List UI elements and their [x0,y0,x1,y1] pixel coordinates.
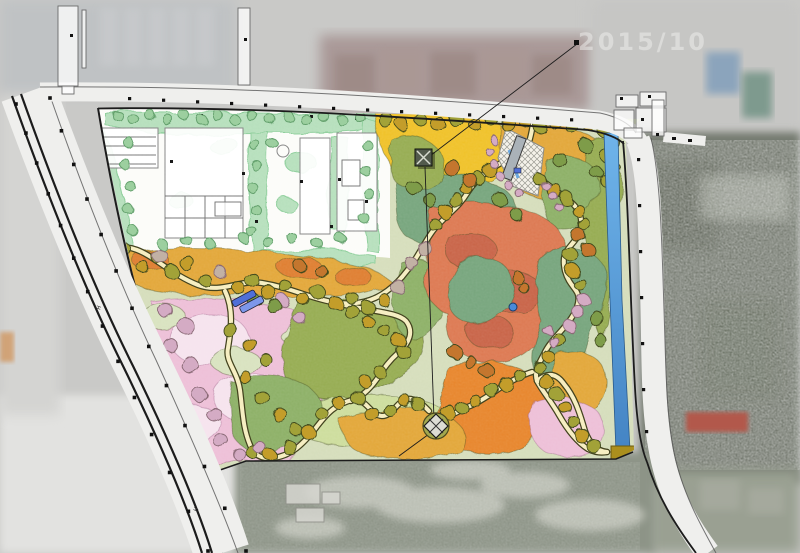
tree-canopy [496,172,504,180]
street-tree-dot [468,113,471,116]
tree-canopy [564,320,576,332]
pavilion-marker-north [415,149,435,169]
street-tree-tick [24,131,28,135]
tree-canopy [398,394,410,406]
tree-canopy [568,416,580,428]
tree-canopy [490,160,498,168]
tree-canopy [594,334,606,346]
aerial-orange-patch [0,332,14,362]
tree-canopy [360,165,370,175]
tree-canopy [359,213,369,223]
tree-canopy [145,110,155,120]
tree-canopy [417,241,431,255]
aerial-field-speckle [240,462,640,550]
tree-canopy [181,235,191,245]
tree-canopy [329,297,343,311]
tree-canopy [560,402,572,414]
tree-canopy [378,324,390,336]
street-tree-dot [298,105,301,108]
tree-canopy [120,159,130,169]
tree-canopy [335,233,345,243]
tree-canopy [337,115,347,125]
tree-canopy [407,181,421,195]
street-tree-dot [536,117,539,120]
tree-canopy [365,407,379,421]
tree-canopy [123,137,133,147]
tree-canopy [316,266,328,278]
street-tree-dot [366,108,369,111]
tree-canopy [572,306,584,318]
tree-canopy [208,408,222,422]
tree-canopy [378,294,390,306]
street-tree-tick [101,324,105,328]
date-watermark: 2015/10 [578,28,708,56]
street-tree-tick [133,396,137,400]
tree-canopy [179,110,189,120]
tree-canopy [575,429,589,443]
small-pond [509,303,517,311]
tree-canopy [213,111,223,121]
street-tree-tick [60,129,64,133]
tree-canopy [578,294,590,306]
tree-canopy [515,189,523,197]
aerial-red-roof [686,412,748,432]
tree-canopy [464,356,476,368]
tree-canopy [572,204,584,216]
tree-canopy [234,449,246,461]
tree-canopy [439,205,453,219]
tree-canopy [294,312,306,324]
tree-canopy [448,345,462,359]
tree-canopy [254,442,266,454]
tree-canopy [129,115,139,125]
tree-canopy [364,189,374,199]
tree-canopy [136,260,148,272]
street-tree-tick [187,509,191,513]
street-tree-dot [640,296,643,299]
tree-canopy [248,183,258,193]
street-tree-tick [244,549,248,553]
tree-canopy [499,377,513,391]
tree-canopy [505,182,513,190]
tree-canopy [542,182,550,190]
street-tree-dot [332,107,335,110]
site-plan-screenshot: 2015/10 [0,0,800,553]
tree-canopy [406,258,418,270]
tree-canopy [240,372,252,384]
tree-canopy [311,237,321,247]
street-tree-dot [641,342,644,345]
tree-canopy [345,305,359,319]
street-tree-dot [570,118,573,121]
street-tree-tick [46,192,50,196]
tree-canopy [243,338,257,352]
tree-canopy [247,111,257,121]
tree-canopy [127,225,137,235]
street-tree-tick [130,306,134,310]
tree-canopy [571,228,585,242]
tree-canopy [239,233,249,243]
street-tree-dot [638,204,641,207]
tree-canopy [563,247,577,261]
tree-canopy [549,387,563,401]
tree-canopy [589,311,603,325]
tree-canopy [287,233,297,243]
tree-canopy [261,285,275,299]
tree-canopy [162,114,172,124]
tree-canopy [579,139,593,153]
tree-canopy [534,362,546,374]
tree-canopy [391,333,405,347]
street-tree-dot [264,104,267,107]
street-tree-tick [147,345,151,349]
tree-canopy [245,273,259,287]
tree-canopy [346,292,358,304]
tree-canopy [113,111,123,121]
tree-canopy [301,115,311,125]
tree-canopy [232,281,244,293]
street-tree-dot [502,115,505,118]
tree-canopy [199,274,211,286]
tree-canopy [290,424,302,436]
tree-canopy [332,396,344,408]
tree-canopy [181,257,195,271]
street-tree-dot [434,112,437,115]
tree-canopy [267,299,281,313]
tree-canopy [296,292,308,304]
tree-canopy [311,285,325,299]
tree-canopy [396,118,408,130]
tree-canopy [157,239,167,249]
tree-canopy [490,136,498,144]
aerial-blue-roof [706,52,740,94]
pavilion-marker-south [423,413,449,439]
street-tree-dot [400,110,403,113]
tree-canopy [449,193,463,207]
tree-canopy [485,383,499,397]
tree-canopy [249,139,259,149]
tree-canopy [549,192,557,200]
tree-canopy [251,205,261,215]
tree-canopy [316,408,328,420]
street-tree-tick [165,384,169,388]
tree-canopy [565,263,579,277]
tree-canopy [553,153,567,167]
tree-canopy [493,193,507,207]
tree-canopy [463,173,477,187]
street-tree-dot [196,100,199,103]
street-tree-dot [128,97,131,100]
leader-end-square [574,40,579,45]
tree-canopy [512,272,524,284]
street-tree-tick [85,197,89,201]
tree-canopy [351,391,365,405]
street-tree-tick [206,549,210,553]
street-tree-dot [645,430,648,433]
tree-canopy [543,325,553,335]
tree-canopy [379,113,393,127]
tree-canopy [252,161,262,171]
tree-canopy [590,166,602,178]
aerial-brown-building-blocks [335,48,572,97]
tree-canopy [182,357,198,373]
tree-canopy [361,301,375,315]
street-tree-tick [48,96,52,100]
tree-canopy [510,208,522,220]
aerial-building-rows-topleft [100,8,214,66]
tree-canopy [301,425,315,439]
street-tree-tick [114,269,118,273]
street-tree-tick [223,506,227,510]
tree-canopy [554,202,562,210]
tree-canopy [374,366,386,378]
tree-canopy [265,114,275,124]
street-tree-tick [72,163,76,167]
tree-canopy [542,350,554,362]
street-tree-tick [168,471,172,475]
tree-canopy [519,283,529,293]
tree-canopy [196,114,206,124]
tree-canopy [125,181,135,191]
tree-canopy [456,402,468,414]
tree-canopy [158,303,172,317]
tree-canopy [177,317,193,333]
street-tree-tick [59,224,63,228]
tree-canopy [283,111,293,121]
tree-canopy [223,323,237,337]
street-tree-tick [14,102,18,106]
tree-canopy [362,316,374,328]
street-tree-dot [642,388,645,391]
tree-canopy [581,243,595,257]
street-tree-tick [203,465,207,469]
offsite-building-sliver-2 [238,8,250,85]
tree-canopy [214,266,226,278]
tree-canopy [263,237,273,247]
tree-canopy [514,370,526,382]
street-tree-dot [162,99,165,102]
tree-canopy [470,396,482,408]
street-tree-tick [35,161,39,165]
tree-canopy [122,203,132,213]
street-tree-tick [72,256,76,260]
street-tree-tick [183,424,187,428]
tree-canopy [255,391,269,405]
offsite-building-sliver-1 [58,6,78,86]
tree-canopy [267,138,277,148]
street-tree-tick [86,290,90,294]
site-plan-map: 2015/10 [0,0,800,553]
street-tree-tick [116,360,120,364]
plaza-bench [514,168,521,173]
street-tree-tick [99,233,103,237]
tree-canopy [283,441,297,455]
tree-canopy [230,115,240,125]
tree-canopy [539,375,553,389]
tree-canopy [587,439,601,453]
tree-canopy [193,388,207,402]
tree-canopy [279,280,291,292]
tree-canopy [294,260,306,272]
tree-canopy [360,376,372,388]
tree-canopy [213,433,227,447]
tree-canopy [355,112,365,122]
tree-canopy [260,354,272,366]
tree-canopy [205,239,215,249]
tree-canopy [165,265,179,279]
aerial-green-roof [742,72,772,118]
tree-canopy [391,280,405,294]
tree-canopy [430,220,442,232]
tree-canopy [444,160,460,176]
tree-canopy [479,363,493,377]
tree-canopy [549,337,559,347]
tree-canopy [486,148,494,156]
street-tree-dot [230,102,233,105]
street-tree-dot [639,250,642,253]
tree-canopy [273,408,287,422]
tree-canopy [411,397,425,411]
street-tree-dot [637,158,640,161]
tree-canopy [153,249,167,263]
tree-canopy [574,278,586,290]
street-tree-tick [150,433,154,437]
tree-canopy [363,141,373,151]
tree-canopy [384,404,396,416]
